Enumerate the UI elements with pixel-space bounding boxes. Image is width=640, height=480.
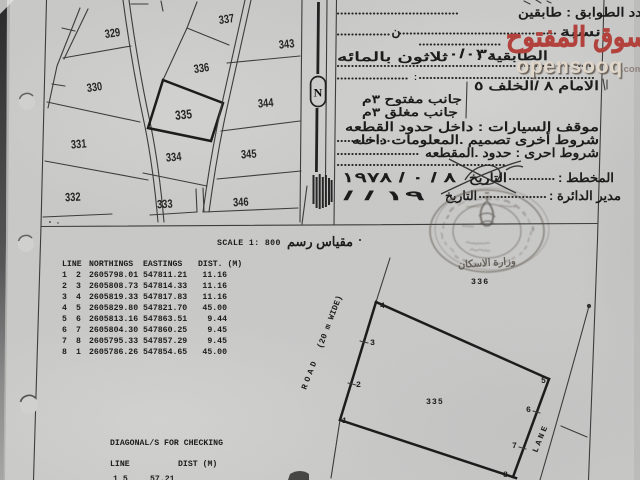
svg-text:الامام ٨ /الخلف ٥: الامام ٨ /الخلف ٥	[474, 79, 599, 94]
svg-text:336: 336	[471, 278, 489, 287]
svg-text:345: 345	[241, 146, 258, 161]
svg-text:333: 333	[157, 197, 173, 212]
svg-text:337: 337	[218, 11, 236, 27]
svg-text:SCALE 1: 800: SCALE 1: 800	[217, 239, 281, 248]
svg-text:شروط احرى : حدود .المقطعه: شروط احرى : حدود .المقطعه	[425, 146, 600, 161]
svg-text:331: 331	[70, 136, 87, 151]
svg-text:ثلاثون بالمائه: ثلاثون بالمائه	[337, 50, 449, 65]
svg-text:335: 335	[174, 106, 192, 123]
svg-text:2: 2	[356, 381, 361, 390]
svg-text:344: 344	[257, 95, 274, 110]
svg-text:DIAGONAL/S FOR CHECKING: DIAGONAL/S FOR CHECKING	[110, 438, 223, 448]
svg-text:343: 343	[278, 36, 295, 52]
svg-text:5: 5	[541, 377, 546, 386]
svg-text:ن: ن	[392, 25, 401, 39]
svg-text:336: 336	[193, 60, 211, 76]
svg-text:346: 346	[233, 195, 249, 210]
svg-text:LINENORTHINGSEASTINGSDIST. (M): LINENORTHINGSEASTINGSDIST. (M)	[62, 259, 242, 269]
svg-text:opensooq: opensooq	[516, 54, 623, 78]
svg-text:مقياس رسم: مقياس رسم	[287, 234, 353, 250]
svg-text:332: 332	[65, 190, 81, 205]
svg-text:1: 1	[342, 417, 347, 426]
svg-text:3: 3	[370, 339, 375, 348]
svg-text:6: 6	[526, 406, 531, 415]
svg-text:4: 4	[380, 302, 385, 311]
svg-text:مدير الدائرة :: مدير الدائرة :	[549, 189, 621, 204]
svg-text:.com: .com	[621, 64, 640, 75]
svg-text:334: 334	[165, 149, 182, 164]
svg-text:329: 329	[104, 25, 122, 41]
svg-text:N: N	[314, 86, 323, 100]
svg-text:330: 330	[86, 79, 104, 95]
svg-text:335: 335	[426, 398, 444, 407]
svg-text:عدد الطوابق : طابقين: عدد الطوابق : طابقين	[518, 6, 640, 21]
svg-text:جانب مفتوح ٣م: جانب مفتوح ٣م	[362, 93, 462, 107]
svg-text:٠/٠٣٠: ٠/٠٣٠	[448, 47, 498, 61]
svg-text:السوق المفتوح: السوق المفتوح	[506, 22, 640, 54]
svg-text::: :	[414, 72, 417, 82]
svg-text:7: 7	[512, 442, 517, 451]
svg-text:8: 8	[503, 471, 508, 480]
svg-text:جانب مغلق ٣م: جانب مغلق ٣م	[362, 106, 458, 120]
svg-text:المخطط :: المخطط :	[558, 171, 614, 185]
svg-text:١٩ / /: ١٩ / /	[343, 188, 425, 203]
svg-text:٨ / ٠ / ١٩٧٨: ٨ / ٠ / ١٩٧٨	[342, 170, 457, 185]
